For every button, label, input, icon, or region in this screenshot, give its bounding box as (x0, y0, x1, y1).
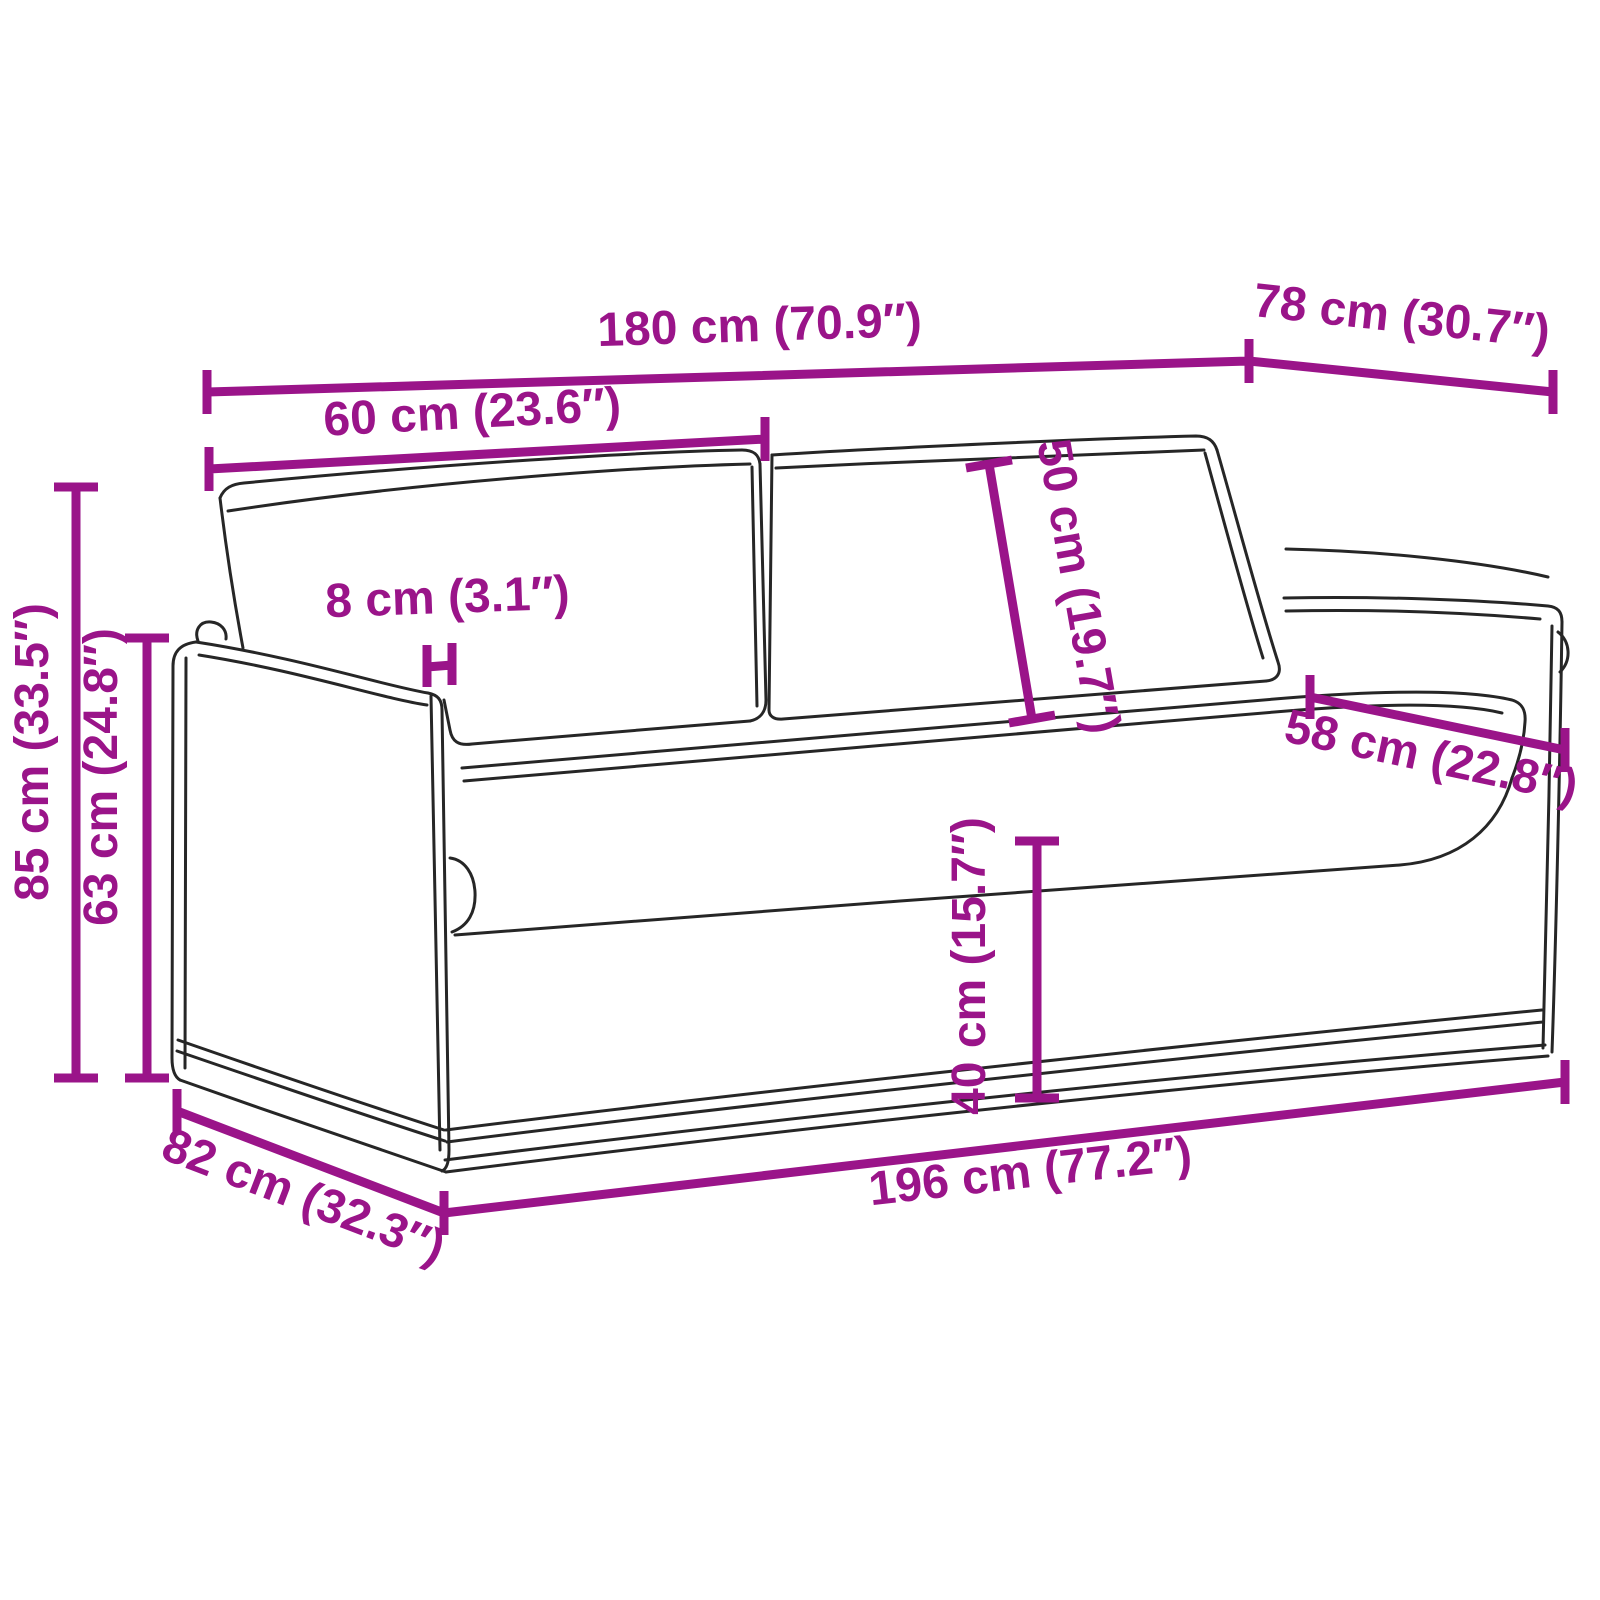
dimension-back-cushion-width: 60 cm (23.6″) (209, 378, 765, 491)
dim-label-total-width: 180 cm (70.9″) (597, 294, 923, 357)
diagram-canvas: 180 cm (70.9″) 78 cm (30.7″) 60 cm (23.6… (0, 0, 1600, 1600)
dimension-top-depth: 78 cm (30.7″) (1249, 274, 1553, 414)
dim-label-seat-height: 40 cm (15.7″) (943, 817, 996, 1115)
dim-label-armrest-thickness: 8 cm (3.1″) (324, 567, 570, 628)
dim-label-top-depth: 78 cm (30.7″) (1251, 274, 1553, 359)
dimension-back-cushion-height: 50 cm (19.7″) (966, 435, 1130, 738)
sofa-dimension-diagram: 180 cm (70.9″) 78 cm (30.7″) 60 cm (23.6… (0, 0, 1600, 1600)
sofa-line-art (172, 436, 1568, 1172)
dimension-seat-depth: 58 cm (22.8″) (1280, 675, 1582, 814)
dimension-armrest-height: 63 cm (24.8″) (75, 628, 169, 1078)
dimension-seat-height: 40 cm (15.7″) (943, 817, 1059, 1115)
dimension-armrest-thickness: 8 cm (3.1″) (324, 567, 570, 687)
left-armrest (172, 622, 449, 1172)
dim-label-back-cushion-height: 50 cm (19.7″) (1026, 435, 1130, 738)
dim-label-total-height: 85 cm (33.5″) (6, 603, 59, 901)
dim-label-seat-depth: 58 cm (22.8″) (1280, 700, 1582, 814)
dim-label-armrest-height: 63 cm (24.8″) (75, 628, 128, 926)
